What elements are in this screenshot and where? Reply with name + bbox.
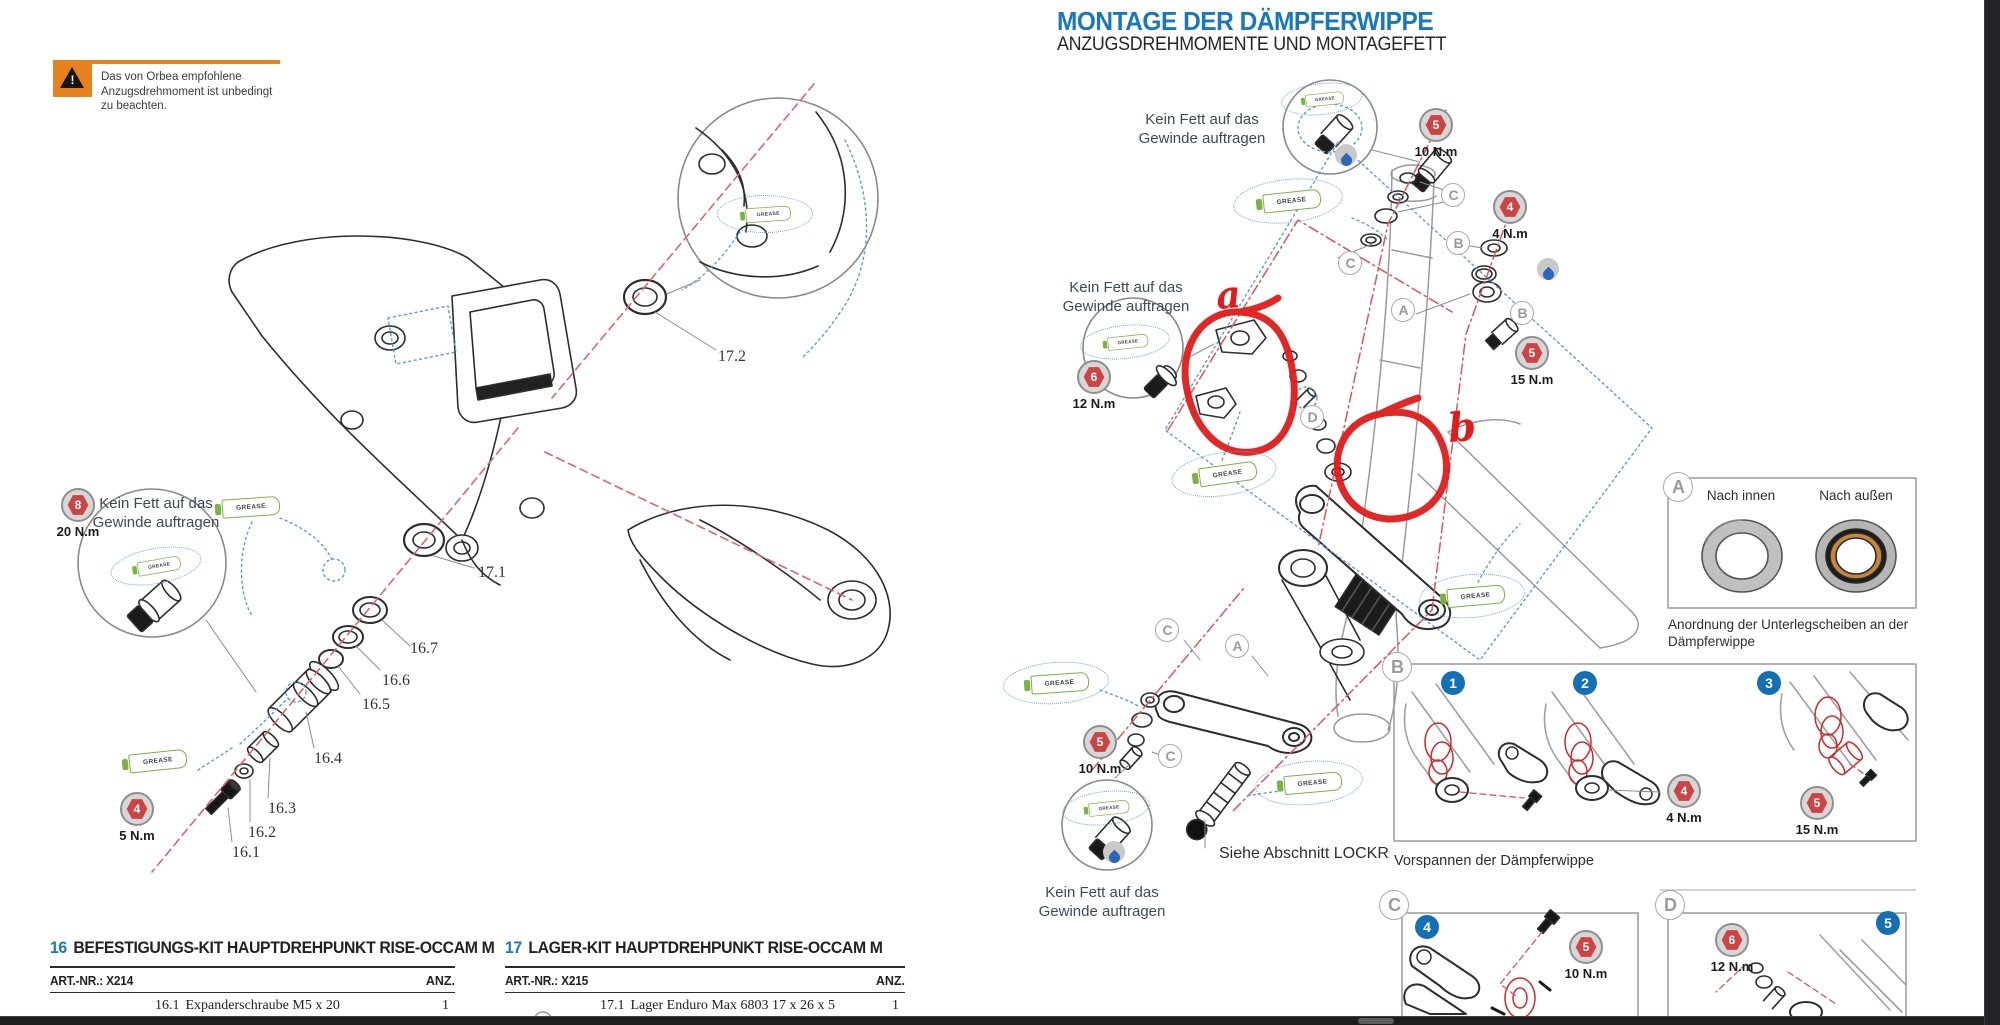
left-frame-art — [229, 236, 576, 585]
see-lockr-note: Siehe Abschnitt LOCKR — [1219, 845, 1389, 863]
panel-b-letter: B — [1382, 652, 1412, 682]
step-5: 5 — [1876, 911, 1900, 935]
torque-badge-c5: 510 N.m — [1556, 930, 1616, 981]
callout-c-2: C — [1338, 251, 1362, 275]
callout-d-1: D — [1300, 405, 1324, 429]
part-label-17-1: 17.1 — [478, 564, 506, 582]
warning-rule — [92, 60, 280, 64]
torque-badge-6: 612 N.m — [1064, 360, 1124, 411]
callout-a-2: A — [1225, 634, 1249, 658]
callout-a-1: A — [1391, 298, 1415, 322]
no-grease-note-mid: Kein Fett auf dasGewinde auftragen — [1046, 278, 1206, 316]
callout-c-3: C — [1155, 618, 1179, 642]
viewer-right-edge — [1984, 0, 2000, 1025]
step-1: 1 — [1441, 671, 1465, 695]
no-grease-note-top: Kein Fett auf dasGewinde auftragen — [1122, 110, 1282, 148]
kit-16-number: 16 — [50, 938, 67, 957]
manual-page: ! Das von Orbea empfohlene Anzugsdrehmom… — [0, 0, 2000, 1025]
torque-badge-d6: 612 N.m — [1702, 923, 1762, 974]
table-rule — [50, 966, 455, 968]
part-label-17-2: 17.2 — [718, 348, 746, 366]
washer-outward-label: Nach außen — [1806, 488, 1906, 503]
page-subtitle: ANZUGSDREHMOMENTE UND MONTAGEFETT — [1057, 34, 1446, 56]
table-rule — [505, 992, 905, 993]
washer-inward-label: Nach innen — [1691, 488, 1791, 503]
left-swingarm-art — [628, 505, 890, 666]
panel-a-letter: A — [1663, 472, 1693, 502]
grease-callout: GREASE — [717, 195, 813, 233]
diagram-line-art — [0, 0, 2000, 1025]
torque-badge-5-top: 510 N.m — [1406, 108, 1466, 159]
torque-badge-4-right: 44 N.m — [1480, 190, 1540, 241]
step-4: 4 — [1415, 915, 1439, 939]
torque-badge-b5: 515 N.m — [1787, 786, 1847, 837]
step-2: 2 — [1573, 671, 1597, 695]
torque-badge-5-mid: 515 N.m — [1502, 336, 1562, 387]
threadlocker-drop-icon — [1537, 258, 1559, 280]
table-rule — [505, 966, 905, 968]
torque-badge-b4: 44 N.m — [1654, 774, 1714, 825]
callout-b-2: B — [1510, 301, 1534, 325]
part-label-16-4: 16.4 — [314, 750, 342, 768]
kit-17-header: 17LAGER-KIT HAUPTDREHPUNKT RISE-OCCAM M — [505, 938, 883, 958]
viewer-bottom-bar — [0, 1016, 2000, 1025]
warning-text: Das von Orbea empfohlene Anzugsdrehmomen… — [101, 70, 281, 114]
panel-c-letter: C — [1379, 890, 1409, 920]
handwritten-b: b — [1446, 403, 1478, 452]
left-part-stack — [204, 597, 410, 842]
threadlocker-drop-icon — [1335, 144, 1357, 166]
callout-c-1: C — [1441, 183, 1465, 207]
part-label-16-1: 16.1 — [232, 844, 260, 862]
part-label-16-6: 16.6 — [382, 672, 410, 690]
callout-c-4: C — [1158, 744, 1182, 768]
part-label-16-2: 16.2 — [248, 824, 276, 842]
kit-17-number: 17 — [505, 938, 522, 957]
callout-b-1: B — [1446, 231, 1470, 255]
panel-d-letter: D — [1655, 890, 1685, 920]
torque-badge-4-left: 45 N.m — [107, 792, 167, 843]
part-label-16-3: 16.3 — [268, 800, 296, 818]
viewer-bottom-handle[interactable] — [1358, 1018, 1394, 1024]
warning-exclamation: ! — [68, 73, 77, 87]
part-label-16-5: 16.5 — [362, 696, 390, 714]
right-blue-dotted — [1100, 104, 1652, 796]
table-rule — [50, 992, 455, 993]
panel-a-caption: Anordnung der Unterlegscheiben an derDäm… — [1668, 616, 1918, 650]
part-label-16-7: 16.7 — [410, 640, 438, 658]
kit-16-qty-header: ANZ. — [50, 974, 455, 988]
page-title: MONTAGE DER DÄMPFERWIPPE — [1057, 6, 1433, 37]
panel-b-caption: Vorspannen der Dämpferwippe — [1394, 853, 1594, 870]
threadlocker-drop-icon — [1103, 841, 1125, 863]
kit-16-row-qty: 1 — [50, 998, 449, 1014]
torque-badge-8: 820 N.m — [48, 488, 108, 539]
handwritten-a: a — [1214, 271, 1242, 318]
kit-16-header: 16BEFESTIGUNGS-KIT HAUPTDREHPUNKT RISE-O… — [50, 938, 494, 958]
kit-17-qty-header: ANZ. — [505, 974, 905, 988]
no-grease-note-bottom: Kein Fett auf dasGewinde auftragen — [1022, 883, 1182, 921]
step-3: 3 — [1757, 671, 1781, 695]
torque-badge-5-low: 510 N.m — [1070, 725, 1130, 776]
kit-17-row-qty: 1 — [505, 998, 899, 1014]
